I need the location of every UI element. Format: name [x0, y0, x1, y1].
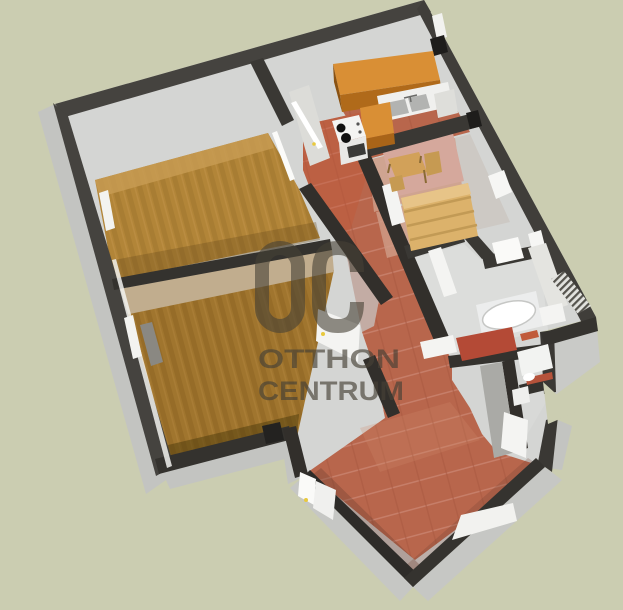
svg-text:CENTRUM: CENTRUM — [258, 376, 404, 406]
svg-text:OTTHON: OTTHON — [258, 344, 400, 374]
